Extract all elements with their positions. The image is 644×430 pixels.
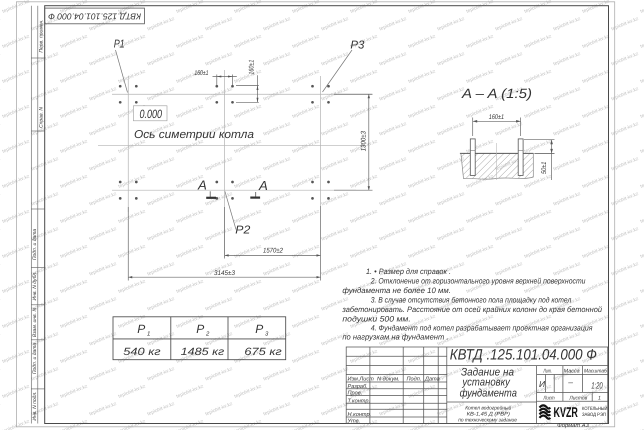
svg-text:1300±3: 1300±3 (360, 131, 367, 151)
svg-text:Лит.: Лит. (543, 369, 552, 375)
svg-text:И: И (539, 379, 546, 389)
svg-text:KVZR: KVZR (554, 405, 578, 421)
svg-text:A: A (197, 178, 207, 193)
svg-text:по техническому задание: по техническому задание (458, 418, 517, 424)
svg-text:3. В случае отсутствия бетонно: 3. В случае отсутствия бетонного пола пл… (371, 296, 572, 305)
svg-text:Дата: Дата (424, 377, 440, 383)
svg-text:Т.контр.: Т.контр. (348, 398, 371, 404)
svg-text:1485 кг: 1485 кг (181, 346, 225, 358)
svg-text:Перв. примен.: Перв. примен. (39, 19, 45, 52)
svg-text:Пров.: Пров. (348, 391, 363, 397)
svg-text:P: P (196, 322, 204, 336)
svg-text:Формат А3: Формат А3 (557, 422, 589, 429)
svg-text:Утв.: Утв. (347, 419, 361, 425)
svg-text:1:20: 1:20 (591, 380, 603, 390)
svg-text:P3: P3 (350, 39, 365, 51)
svg-text:2. Отклонение от горизонтально: 2. Отклонение от горизонтального уровня … (370, 277, 586, 286)
svg-text:фундамента не более 10 мм.: фундамента не более 10 мм. (342, 286, 451, 295)
svg-text:Масштаб: Масштаб (584, 369, 608, 375)
svg-text:КВТД.125.101.04.000 Ф: КВТД.125.101.04.000 Ф (48, 12, 141, 22)
svg-text:Масса: Масса (564, 369, 580, 375)
svg-text:ЗАВОД РЭП: ЗАВОД РЭП (582, 412, 606, 418)
svg-text:P2: P2 (235, 225, 251, 237)
svg-text:1. • Размер для справок .: 1. • Размер для справок . (366, 267, 451, 276)
svg-text:160±1: 160±1 (194, 70, 208, 77)
svg-text:160±1: 160±1 (489, 114, 504, 121)
svg-text:1570±2: 1570±2 (263, 247, 283, 254)
svg-text:Подп. и дата: Подп. и дата (32, 343, 38, 375)
svg-text:3145±3: 3145±3 (214, 270, 235, 277)
svg-text:4. Фундамент под котел разраба: 4. Фундамент под котел разрабатывает про… (371, 324, 594, 333)
svg-text:1: 1 (147, 330, 150, 337)
svg-text:подушки 500 мм.: подушки 500 мм. (342, 314, 410, 323)
svg-text:забетонировать. Расстояние от: забетонировать. Расстояние от осей крайн… (341, 305, 602, 314)
svg-text:Изм.Лист: Изм.Лист (348, 377, 375, 383)
svg-text:P: P (137, 322, 145, 336)
svg-text:N докум.: N докум. (377, 376, 400, 383)
svg-text:Подп. и дата: Подп. и дата (32, 229, 38, 261)
svg-text:Ось симетрии котла: Ось симетрии котла (134, 129, 254, 141)
svg-text:50±1: 50±1 (541, 161, 548, 174)
svg-text:2: 2 (205, 330, 210, 337)
svg-text:P: P (255, 322, 263, 336)
svg-text:Лист: Лист (543, 396, 556, 402)
svg-text:Подп.: Подп. (407, 376, 422, 383)
svg-text:–: – (567, 377, 573, 387)
svg-text:Разраб.: Разраб. (348, 383, 368, 390)
svg-text:160±1: 160±1 (248, 59, 255, 74)
svg-text:КВТД .125.101.04.000 Ф: КВТД .125.101.04.000 Ф (450, 346, 597, 363)
svg-text:Инв. N дубл.: Инв. N дубл. (32, 272, 38, 301)
svg-text:КОТЕЛЬНЫЙ: КОТЕЛЬНЫЙ (582, 405, 608, 412)
svg-text:Справ. N: Справ. N (39, 107, 45, 128)
svg-text:0.000: 0.000 (140, 107, 163, 121)
svg-text:675 кг: 675 кг (244, 346, 281, 358)
svg-text:фундамента: фундамента (460, 388, 517, 400)
svg-text:540 кг: 540 кг (123, 346, 160, 358)
svg-text:Инв. N подл.: Инв. N подл. (32, 391, 38, 420)
svg-text:Листов: Листов (568, 396, 587, 402)
svg-text:P1: P1 (114, 38, 125, 50)
svg-text:по нагрузкам на фундамент .: по нагрузкам на фундамент . (342, 333, 448, 342)
svg-text:A: A (258, 178, 268, 193)
svg-text:A – A (1:5): A – A (1:5) (461, 86, 532, 101)
svg-text:1: 1 (598, 396, 601, 402)
svg-text:Взам. инв. N: Взам. инв. N (32, 308, 38, 338)
svg-text:Н.контр.: Н.контр. (348, 412, 372, 418)
svg-text:Котел водогрейный: Котел водогрейный (465, 406, 511, 412)
